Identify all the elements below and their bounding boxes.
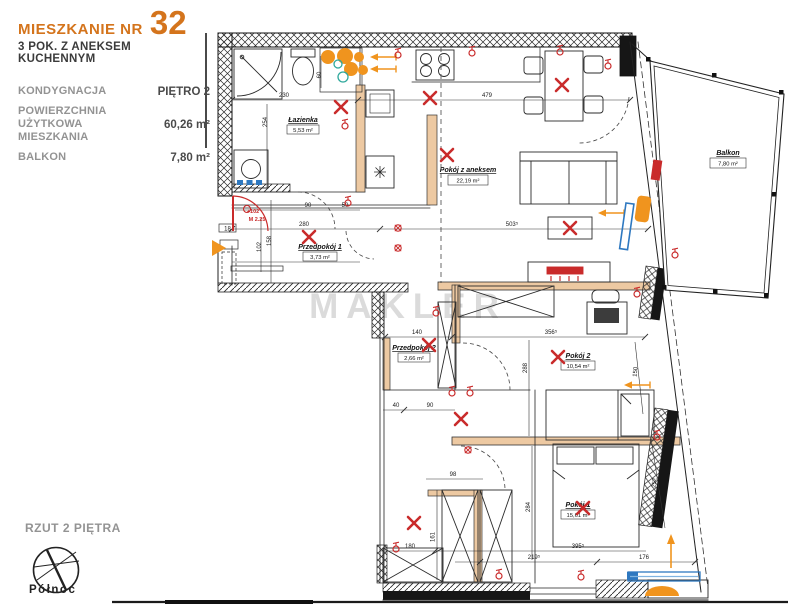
floor-view-label: RZUT 2 PIĘTRA bbox=[25, 521, 121, 535]
svg-text:Pokój z aneksem: Pokój z aneksem bbox=[440, 167, 496, 174]
dimension-label: 40 bbox=[393, 403, 400, 409]
svg-text:Przedpokój 1: Przedpokój 1 bbox=[298, 244, 342, 251]
svg-text:3,73 m²: 3,73 m² bbox=[310, 255, 330, 261]
title-prefix: MIESZKANIE NR bbox=[18, 21, 143, 38]
bathroom-cabinet bbox=[366, 90, 394, 188]
room-label-przedpokoj1: Przedpokój 1 3,73 m² bbox=[298, 244, 342, 261]
dimension-label: 98 bbox=[450, 472, 457, 478]
orange-arrow-icon bbox=[370, 53, 396, 60]
svg-text:Balkon: Balkon bbox=[716, 150, 739, 157]
window-icon bbox=[620, 203, 634, 250]
red-note: M 2.25 bbox=[249, 217, 266, 223]
north-label: Północ bbox=[29, 584, 76, 596]
dimension-label: 395⁵ bbox=[572, 543, 585, 550]
dimension-label: 150 bbox=[632, 366, 639, 377]
orange-arrow-icon bbox=[370, 65, 396, 72]
toilet bbox=[291, 49, 315, 85]
dimension-label: 90 bbox=[305, 203, 312, 209]
sofa bbox=[520, 152, 617, 204]
dimension-label: 161 bbox=[431, 531, 437, 542]
dimension-label: 284 bbox=[526, 501, 532, 512]
dimension-label: 479 bbox=[482, 93, 493, 99]
legend-panel: MIESZKANIE NR 32 3 POK. Z ANEKSEM KUCHEN… bbox=[18, 8, 210, 171]
dimension-label: 90 bbox=[427, 403, 434, 409]
svg-text:22,19 m²: 22,19 m² bbox=[457, 179, 480, 185]
orange-arrow-icon bbox=[598, 209, 624, 216]
shower bbox=[234, 49, 282, 99]
apartment-title: MIESZKANIE NR 32 bbox=[18, 8, 210, 38]
dimension-label: 252 bbox=[651, 477, 658, 488]
spec-row-balcony: BALKON 7,80 m² bbox=[18, 151, 210, 164]
apartment-number: 32 bbox=[150, 8, 187, 38]
spec-row-floor: KONDYGNACJA PIĘTRO 2 bbox=[18, 85, 210, 98]
balcony bbox=[646, 57, 784, 298]
dimension-label: 288 bbox=[523, 362, 529, 373]
svg-text:Łazienka: Łazienka bbox=[287, 117, 318, 124]
dimension-label: 254 bbox=[263, 116, 269, 127]
spec-row-area: POWIERZCHNIA UŻYTKOWA MIESZKANIA 60,26 m… bbox=[18, 105, 210, 144]
svg-text:10,54 m²: 10,54 m² bbox=[567, 364, 590, 370]
apartment-subtitle: 3 POK. Z ANEKSEM KUCHENNYM bbox=[18, 41, 210, 65]
dimension-label: 158 bbox=[267, 235, 273, 246]
svg-text:2,66 m²: 2,66 m² bbox=[404, 356, 424, 362]
svg-text:5,53 m²: 5,53 m² bbox=[293, 128, 313, 134]
spec-list: KONDYGNACJA PIĘTRO 2 POWIERZCHNIA UŻYTKO… bbox=[18, 85, 210, 164]
orange-triangle-icon bbox=[212, 240, 226, 256]
room-label-pokoj2: Pokój 2 10,54 m² bbox=[561, 353, 595, 370]
double-bed bbox=[553, 444, 639, 547]
spec-label: BALKON bbox=[18, 151, 130, 164]
dimension-label: 356⁵ bbox=[545, 329, 558, 336]
svg-text:Pokój 2: Pokój 2 bbox=[566, 353, 591, 360]
watermark: MAKLER bbox=[309, 287, 507, 326]
stove bbox=[416, 50, 454, 80]
spec-label: POWIERZCHNIA UŻYTKOWA MIESZKANIA bbox=[18, 105, 130, 144]
room-label-przedpokoj2: Przedpokój 2 2,66 m² bbox=[392, 345, 436, 362]
spec-value: 7,80 m² bbox=[170, 152, 210, 164]
dimension-label: 230 bbox=[279, 93, 290, 99]
dimension-label: 503⁵ bbox=[506, 221, 519, 228]
orange-arrow-icon bbox=[624, 381, 650, 388]
dimension-label: 18 bbox=[224, 227, 231, 233]
single-bed bbox=[546, 390, 654, 440]
radiator-icon bbox=[634, 195, 651, 223]
spec-value: PIĘTRO 2 bbox=[158, 86, 210, 98]
dimension-label: 176 bbox=[639, 555, 650, 561]
radiator-icon bbox=[645, 586, 679, 596]
page-edge-line bbox=[112, 600, 788, 604]
orange-arrow-icon bbox=[667, 534, 675, 568]
desk bbox=[587, 290, 627, 334]
dimension-label: 140 bbox=[412, 330, 423, 336]
svg-text:7,80 m²: 7,80 m² bbox=[718, 162, 738, 168]
spec-value: 60,26 m² bbox=[164, 119, 210, 131]
dimension-label: 280 bbox=[299, 222, 310, 228]
washing-machine bbox=[234, 150, 268, 188]
dimension-label: 180 bbox=[405, 544, 416, 550]
spec-label: KONDYGNACJA bbox=[18, 85, 130, 98]
room-label-pokoj-z-aneksem: Pokój z aneksem 22,19 m² bbox=[440, 167, 496, 185]
dimension-label: 219⁵ bbox=[528, 554, 541, 561]
red-note: +102 bbox=[247, 209, 259, 215]
dimension-label: 102 bbox=[257, 241, 263, 252]
tv-stand bbox=[528, 262, 610, 282]
room-label-lazienka: Łazienka 5,53 m² bbox=[287, 117, 319, 134]
